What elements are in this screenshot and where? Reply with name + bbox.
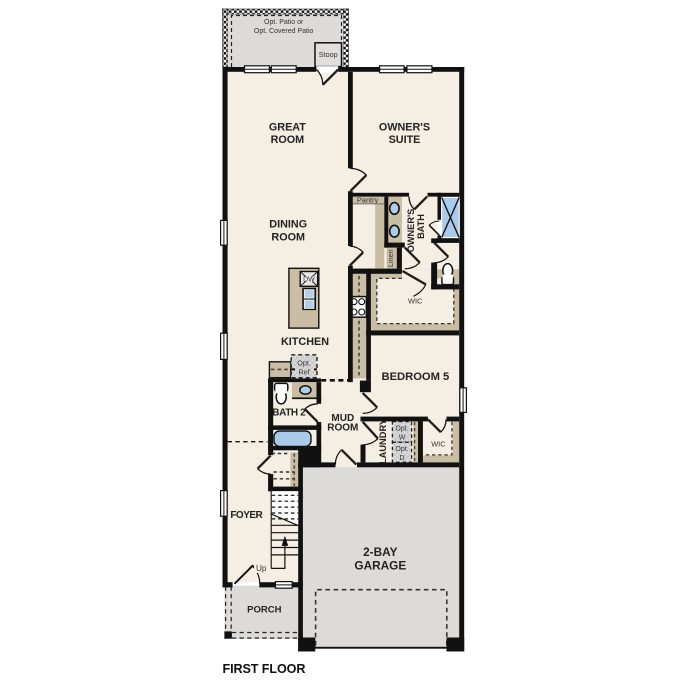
svg-text:OWNER'S: OWNER'S (379, 121, 430, 133)
svg-text:ROOM: ROOM (271, 134, 305, 146)
svg-text:DW: DW (303, 277, 315, 284)
svg-text:BATH 2: BATH 2 (272, 407, 306, 418)
svg-text:Ref: Ref (299, 368, 310, 377)
svg-text:DINING: DINING (269, 219, 307, 231)
svg-text:Opt.: Opt. (395, 446, 408, 453)
svg-text:LAUNDRY: LAUNDRY (378, 418, 388, 464)
svg-text:D: D (399, 455, 404, 462)
svg-text:WIC: WIC (408, 296, 423, 305)
svg-text:Linen: Linen (386, 249, 395, 267)
svg-text:2-BAY: 2-BAY (363, 545, 397, 559)
svg-text:SUITE: SUITE (389, 134, 421, 146)
svg-text:PORCH: PORCH (247, 604, 281, 615)
svg-text:OWNER'S: OWNER'S (406, 209, 416, 253)
svg-text:Opt.: Opt. (395, 426, 408, 433)
svg-text:BATH: BATH (416, 214, 426, 239)
svg-text:FOYER: FOYER (230, 510, 263, 521)
svg-text:BEDROOM 5: BEDROOM 5 (382, 371, 450, 383)
svg-text:KITCHEN: KITCHEN (281, 336, 329, 348)
svg-text:Opt. Covered Patio: Opt. Covered Patio (254, 28, 314, 35)
svg-text:ROOM: ROOM (271, 231, 305, 243)
svg-text:W: W (399, 435, 406, 442)
svg-text:Stoop: Stoop (319, 50, 338, 59)
svg-text:FIRST FLOOR: FIRST FLOOR (223, 662, 306, 676)
svg-text:Up: Up (256, 564, 267, 573)
svg-text:GREAT: GREAT (269, 121, 306, 133)
svg-text:Pantry: Pantry (357, 195, 379, 204)
svg-text:Opt.: Opt. (297, 358, 311, 367)
svg-text:WIC: WIC (431, 439, 446, 448)
svg-text:ROOM: ROOM (327, 422, 358, 433)
svg-text:Opt. Patio or: Opt. Patio or (264, 19, 304, 26)
svg-text:GARAGE: GARAGE (354, 558, 406, 572)
